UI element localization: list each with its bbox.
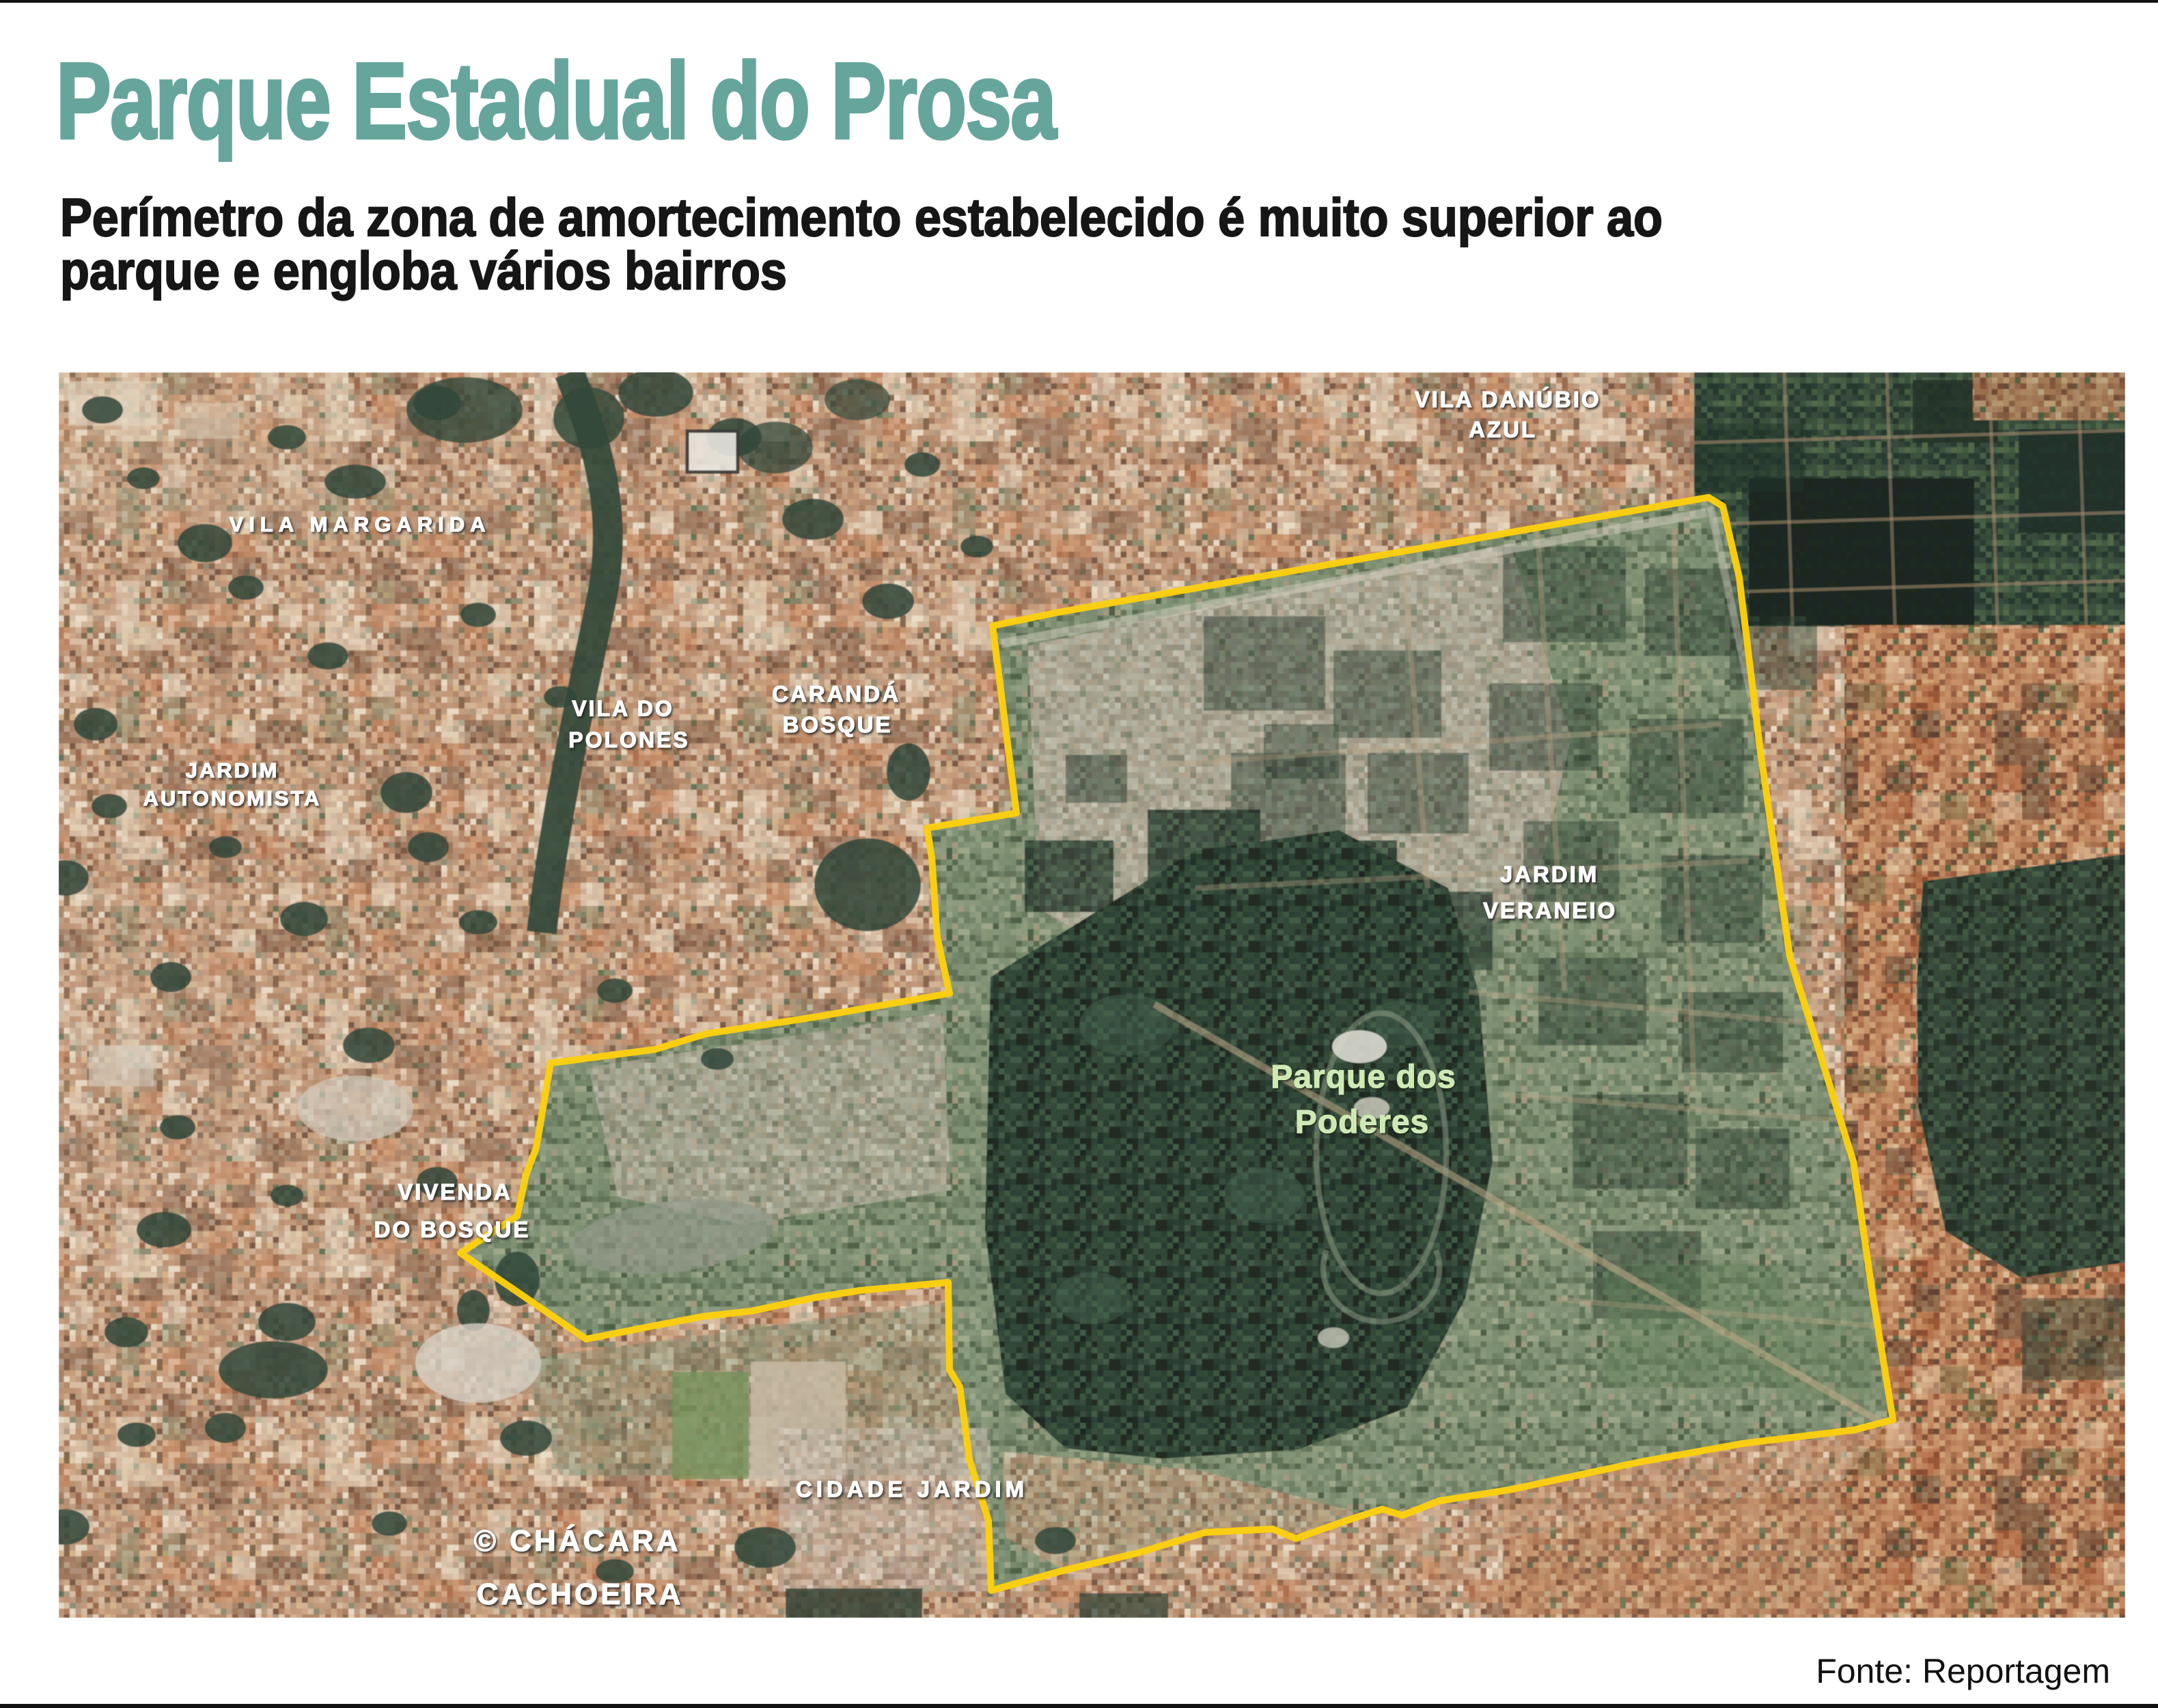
svg-text:JARDIM: JARDIM bbox=[1500, 862, 1599, 887]
svg-text:Poderes: Poderes bbox=[1295, 1104, 1429, 1140]
svg-text:VILA MARGARIDA: VILA MARGARIDA bbox=[230, 512, 491, 536]
svg-text:VIVENDA: VIVENDA bbox=[398, 1179, 512, 1204]
svg-text:JARDIM: JARDIM bbox=[186, 758, 279, 782]
svg-text:CIDADE JARDIM: CIDADE JARDIM bbox=[796, 1476, 1028, 1502]
svg-text:POLONES: POLONES bbox=[568, 728, 689, 752]
svg-text:AZUL: AZUL bbox=[1469, 417, 1537, 442]
svg-text:DO BOSQUE: DO BOSQUE bbox=[374, 1217, 531, 1242]
svg-text:VILA DANÚBIO: VILA DANÚBIO bbox=[1414, 387, 1601, 412]
svg-text:Parque dos: Parque dos bbox=[1271, 1059, 1456, 1095]
svg-text:CACHOEIRA: CACHOEIRA bbox=[477, 1578, 683, 1611]
svg-text:BOSQUE: BOSQUE bbox=[782, 712, 892, 737]
svg-text:VERANEIO: VERANEIO bbox=[1483, 898, 1617, 923]
svg-text:AUTONOMISTA: AUTONOMISTA bbox=[143, 786, 322, 810]
svg-text:© CHÁCARA: © CHÁCARA bbox=[473, 1524, 680, 1558]
svg-text:CARANDÁ: CARANDÁ bbox=[772, 681, 900, 706]
svg-text:VILA DO: VILA DO bbox=[572, 696, 674, 721]
